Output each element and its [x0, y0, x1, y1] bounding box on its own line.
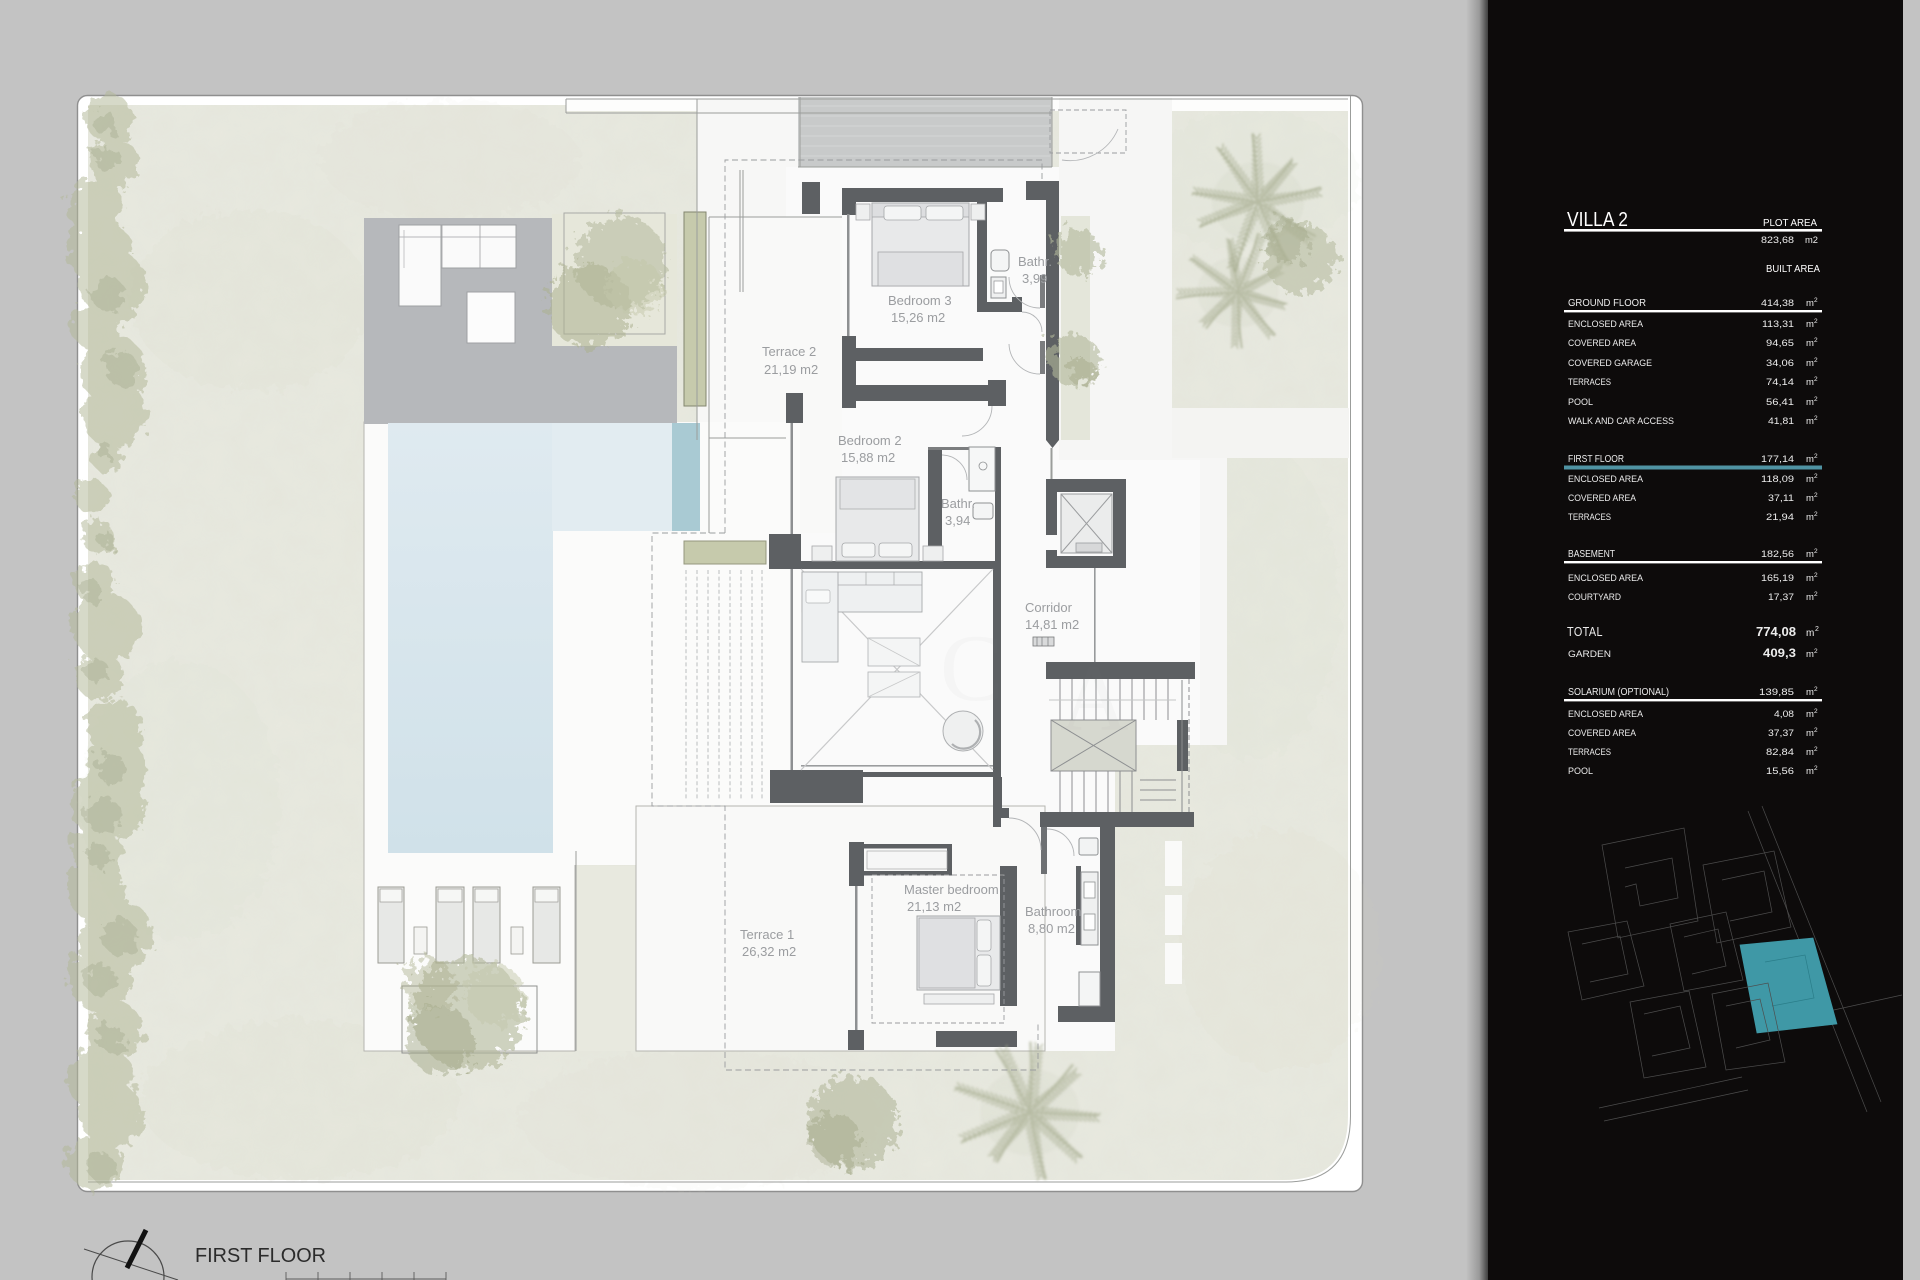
- svg-text:26,32 m2: 26,32 m2: [742, 944, 796, 959]
- svg-text:m: m: [1806, 397, 1814, 408]
- svg-text:37,11: 37,11: [1768, 493, 1794, 504]
- svg-text:182,56: 182,56: [1761, 549, 1794, 560]
- svg-text:2: 2: [1814, 648, 1818, 655]
- svg-text:A: A: [1060, 645, 1129, 751]
- svg-text:15,88 m2: 15,88 m2: [841, 450, 895, 465]
- svg-text:774,08: 774,08: [1756, 625, 1796, 639]
- svg-text:m: m: [1806, 766, 1814, 777]
- svg-text:m: m: [1806, 377, 1814, 388]
- svg-text:2: 2: [1814, 492, 1818, 499]
- svg-text:82,84: 82,84: [1766, 747, 1794, 758]
- svg-text:ENCLOSED AREA: ENCLOSED AREA: [1568, 573, 1644, 584]
- svg-text:2: 2: [1814, 297, 1818, 304]
- svg-text:2: 2: [1814, 337, 1818, 344]
- svg-text:2: 2: [1814, 396, 1818, 403]
- svg-text:2: 2: [1814, 453, 1818, 460]
- svg-text:m: m: [1806, 573, 1814, 584]
- svg-text:m: m: [1806, 549, 1814, 560]
- svg-text:m: m: [1806, 728, 1814, 739]
- svg-text:56,41: 56,41: [1766, 397, 1794, 408]
- svg-text:41,81: 41,81: [1768, 416, 1794, 427]
- svg-text:SOLARIUM (OPTIONAL): SOLARIUM (OPTIONAL): [1568, 687, 1669, 698]
- svg-text:2: 2: [1814, 376, 1818, 383]
- svg-text:PLOT AREA: PLOT AREA: [1763, 218, 1817, 229]
- svg-text:21,94: 21,94: [1766, 512, 1794, 523]
- svg-text:GARDEN: GARDEN: [1568, 649, 1611, 660]
- svg-text:TOTAL: TOTAL: [1567, 624, 1603, 639]
- svg-text:165,19: 165,19: [1761, 573, 1794, 584]
- svg-text:ENCLOSED AREA: ENCLOSED AREA: [1568, 709, 1644, 720]
- svg-text:2: 2: [1814, 591, 1818, 598]
- svg-text:177,14: 177,14: [1761, 454, 1794, 465]
- svg-text:2: 2: [1814, 318, 1818, 325]
- svg-text:m: m: [1806, 592, 1814, 603]
- svg-text:74,14: 74,14: [1766, 377, 1794, 388]
- svg-text:2: 2: [1814, 686, 1818, 693]
- svg-text:Master bedroom: Master bedroom: [904, 882, 999, 897]
- svg-text:COVERED GARAGE: COVERED GARAGE: [1568, 358, 1652, 369]
- svg-text:2: 2: [1814, 415, 1818, 422]
- svg-text:2: 2: [1814, 746, 1818, 753]
- svg-text:2: 2: [1814, 511, 1818, 518]
- svg-text:94,65: 94,65: [1766, 338, 1794, 349]
- svg-text:Bathr.: Bathr.: [941, 496, 975, 511]
- svg-text:GROUND FLOOR: GROUND FLOOR: [1568, 298, 1646, 309]
- svg-text:Terrace 2: Terrace 2: [762, 344, 816, 359]
- svg-text:m: m: [1806, 319, 1814, 330]
- svg-text:2: 2: [1814, 572, 1818, 579]
- svg-text:17,37: 17,37: [1768, 592, 1794, 603]
- svg-text:414,38: 414,38: [1761, 298, 1794, 309]
- svg-text:m: m: [1806, 298, 1814, 309]
- svg-text:WALK AND CAR ACCESS: WALK AND CAR ACCESS: [1568, 416, 1674, 427]
- svg-text:2: 2: [1814, 473, 1818, 480]
- svg-text:15,26 m2: 15,26 m2: [891, 310, 945, 325]
- svg-text:m: m: [1806, 454, 1814, 465]
- svg-text:34,06: 34,06: [1766, 358, 1794, 369]
- svg-text:m: m: [1806, 358, 1814, 369]
- svg-text:2: 2: [1814, 548, 1818, 555]
- svg-text:Bedroom 3: Bedroom 3: [888, 293, 952, 308]
- svg-text:8,80 m2: 8,80 m2: [1028, 921, 1075, 936]
- svg-text:m: m: [1806, 628, 1814, 639]
- svg-text:TERRACES: TERRACES: [1568, 377, 1611, 388]
- svg-text:ENCLOSED AREA: ENCLOSED AREA: [1568, 319, 1644, 330]
- svg-text:2: 2: [1815, 626, 1819, 633]
- svg-text:m: m: [1806, 687, 1814, 698]
- svg-text:COVERED AREA: COVERED AREA: [1568, 728, 1637, 739]
- svg-text:COVERED AREA: COVERED AREA: [1568, 338, 1637, 349]
- svg-text:21,13 m2: 21,13 m2: [907, 899, 961, 914]
- svg-text:m: m: [1806, 649, 1814, 660]
- svg-text:3,99: 3,99: [1022, 271, 1047, 286]
- svg-text:m: m: [1806, 474, 1814, 485]
- svg-text:POOL: POOL: [1568, 766, 1593, 777]
- svg-text:14,81 m2: 14,81 m2: [1025, 617, 1079, 632]
- svg-text:COURTYARD: COURTYARD: [1568, 592, 1621, 603]
- svg-text:FIRST FLOOR: FIRST FLOOR: [195, 1245, 326, 1267]
- svg-text:m: m: [1806, 493, 1814, 504]
- svg-text:2: 2: [1814, 727, 1818, 734]
- svg-text:Corridor: Corridor: [1025, 600, 1073, 615]
- svg-text:POOL: POOL: [1568, 397, 1593, 408]
- svg-text:409,3: 409,3: [1763, 648, 1796, 660]
- svg-text:TERRACES: TERRACES: [1568, 512, 1611, 523]
- svg-text:Bathr.: Bathr.: [1018, 254, 1052, 269]
- svg-text:VILLA 2: VILLA 2: [1567, 209, 1628, 231]
- svg-text:15,56: 15,56: [1766, 766, 1794, 777]
- svg-text:m: m: [1806, 747, 1814, 758]
- svg-text:2: 2: [1814, 708, 1818, 715]
- svg-text:2: 2: [1814, 765, 1818, 772]
- svg-text:TERRACES: TERRACES: [1568, 747, 1611, 758]
- svg-text:3,94: 3,94: [945, 513, 970, 528]
- svg-text:m: m: [1806, 512, 1814, 523]
- svg-text:COVERED AREA: COVERED AREA: [1568, 493, 1637, 504]
- svg-text:21,19 m2: 21,19 m2: [764, 362, 818, 377]
- svg-text:2: 2: [1814, 357, 1818, 364]
- svg-text:BUILT AREA: BUILT AREA: [1766, 264, 1820, 275]
- svg-text:m: m: [1806, 338, 1814, 349]
- svg-text:Terrace 1: Terrace 1: [740, 927, 794, 942]
- svg-text:113,31: 113,31: [1762, 319, 1794, 330]
- svg-text:823,68: 823,68: [1761, 235, 1794, 246]
- svg-text:BASEMENT: BASEMENT: [1568, 549, 1615, 560]
- svg-text:139,85: 139,85: [1759, 687, 1794, 698]
- svg-text:FIRST FLOOR: FIRST FLOOR: [1568, 454, 1624, 465]
- svg-text:m: m: [1806, 416, 1814, 427]
- svg-text:ENCLOSED AREA: ENCLOSED AREA: [1568, 474, 1644, 485]
- svg-text:Bathroom: Bathroom: [1025, 904, 1081, 919]
- svg-text:m2: m2: [1805, 235, 1818, 246]
- svg-text:m: m: [1806, 709, 1814, 720]
- svg-text:118,09: 118,09: [1761, 474, 1794, 485]
- svg-text:4,08: 4,08: [1774, 709, 1794, 720]
- svg-text:Bedroom 2: Bedroom 2: [838, 433, 902, 448]
- svg-text:37,37: 37,37: [1768, 728, 1794, 739]
- svg-text:C: C: [940, 615, 1003, 721]
